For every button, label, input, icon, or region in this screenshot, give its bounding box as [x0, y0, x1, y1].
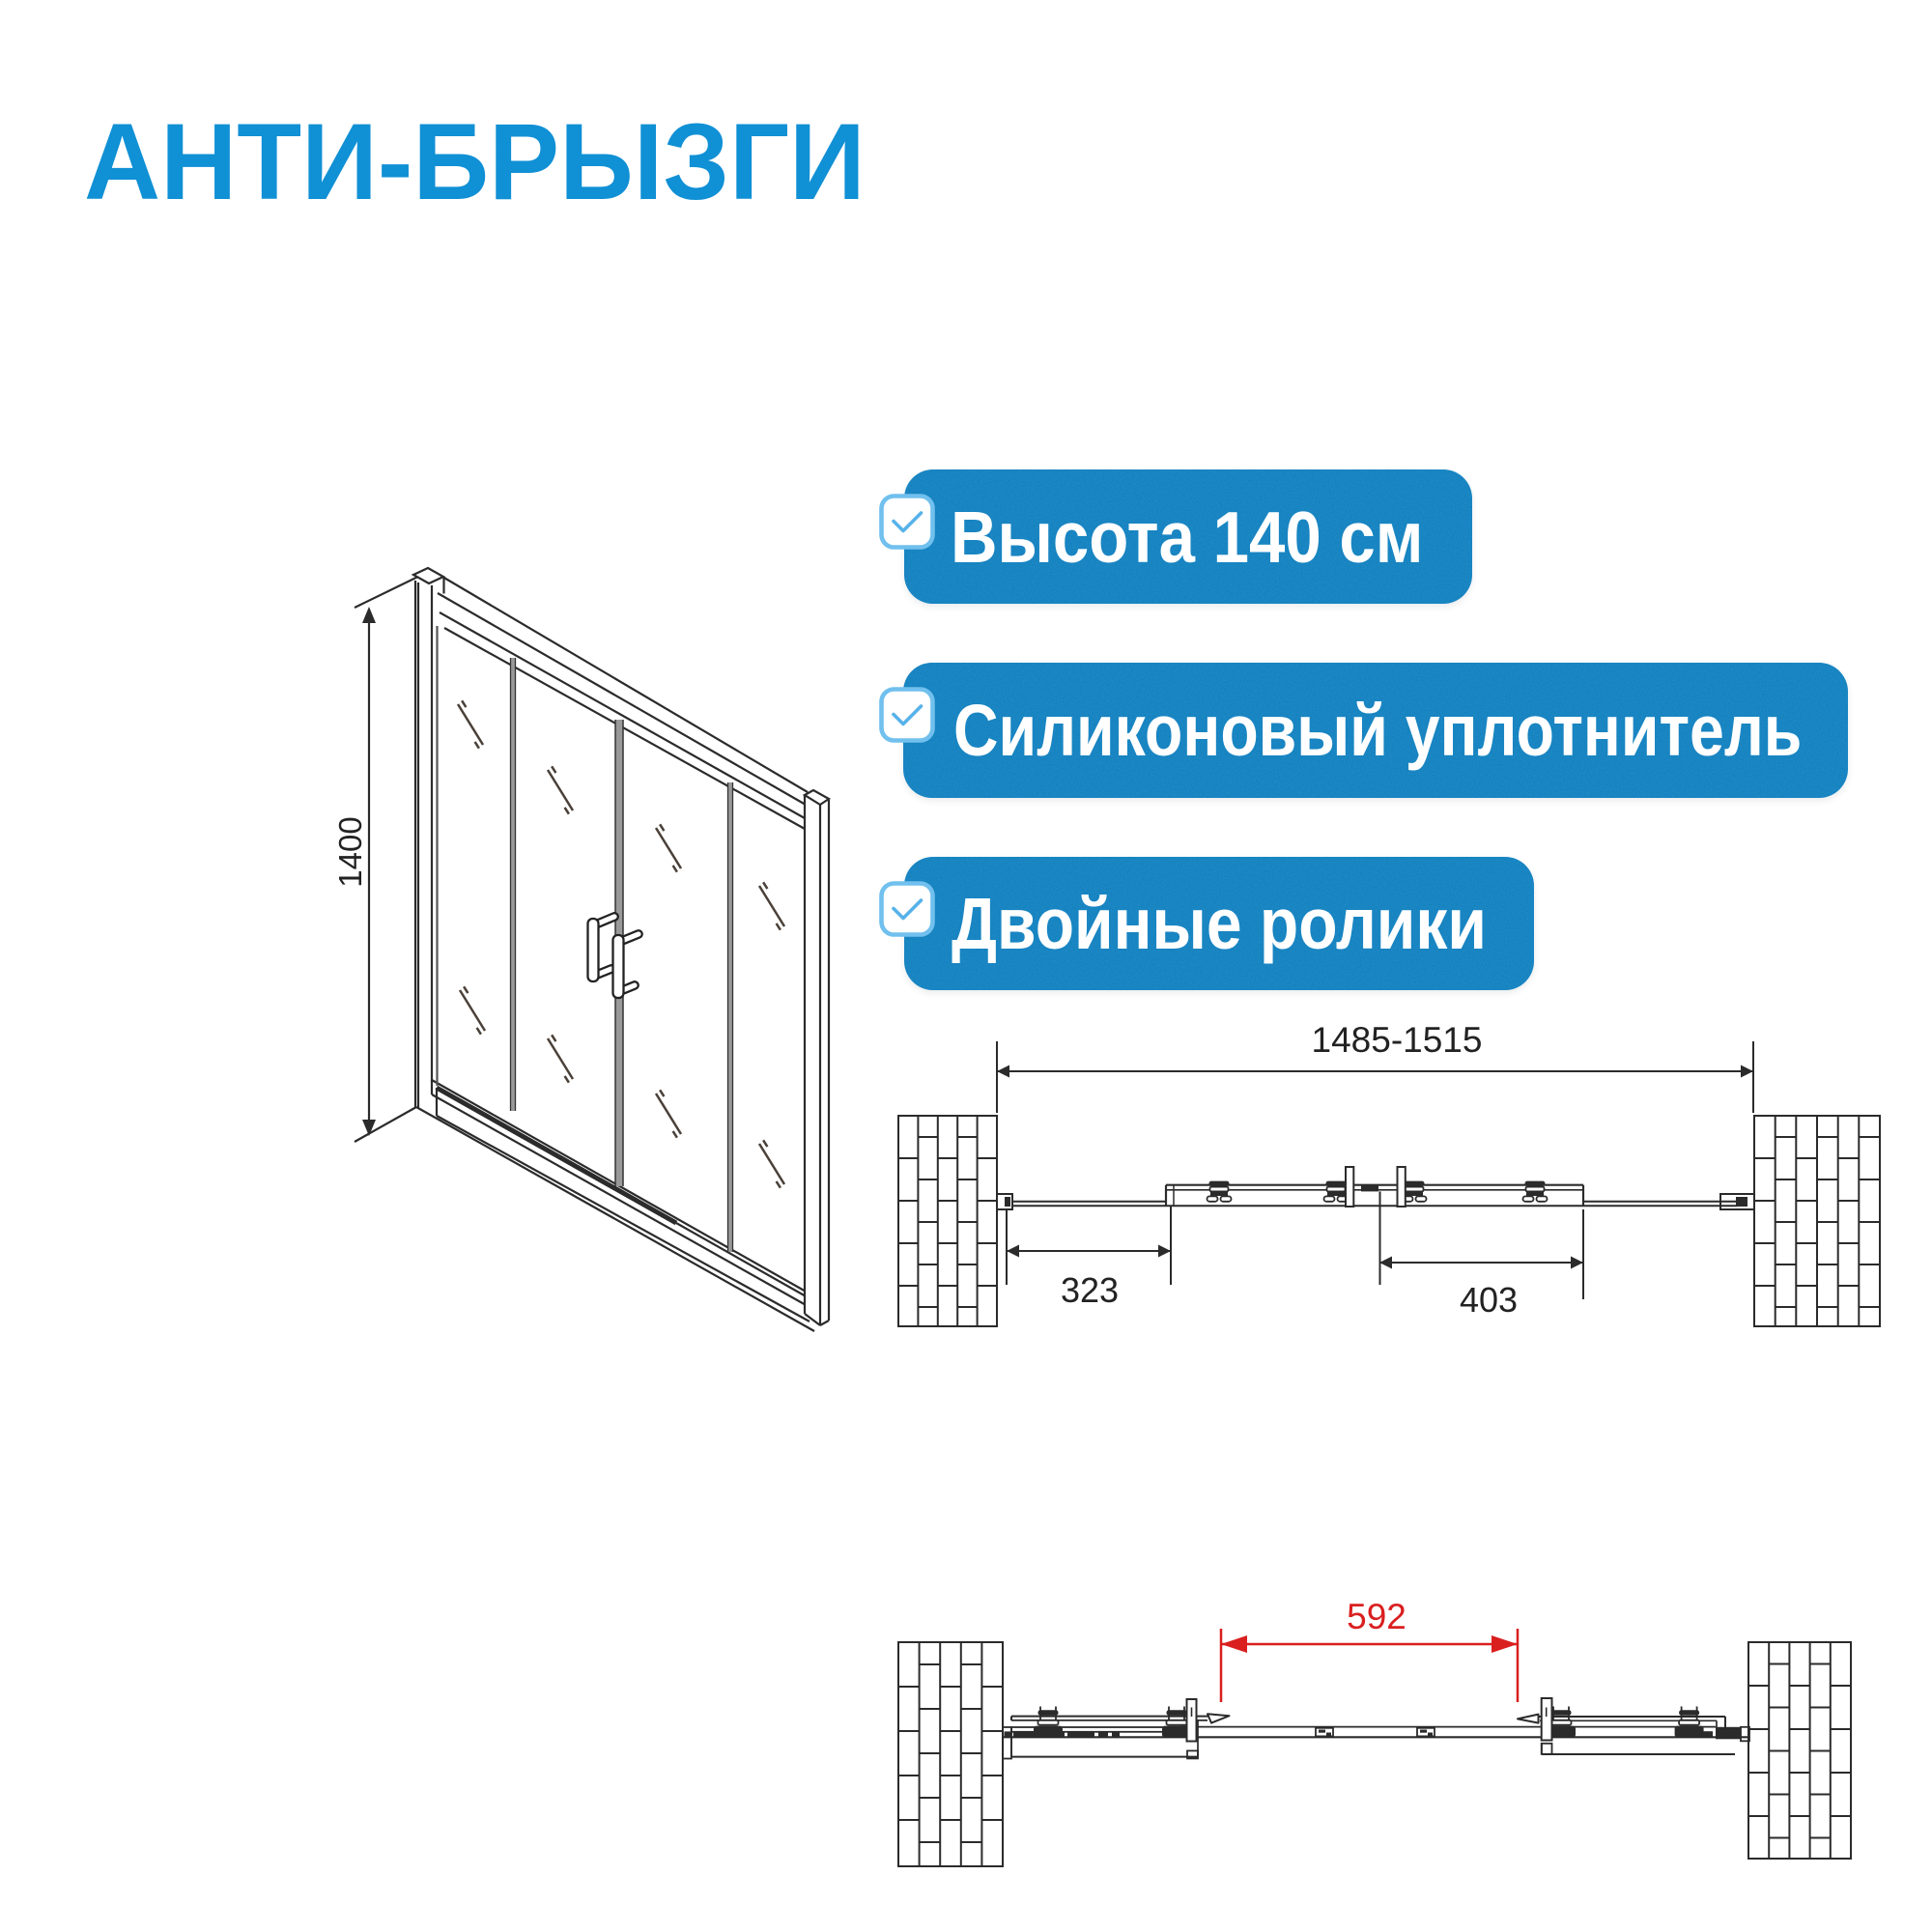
svg-text:1485-1515: 1485-1515: [1312, 1020, 1483, 1060]
svg-text:323: 323: [1061, 1270, 1119, 1310]
svg-text:1400: 1400: [332, 816, 368, 887]
svg-text:592: 592: [1347, 1597, 1406, 1636]
svg-text:403: 403: [1460, 1280, 1518, 1320]
